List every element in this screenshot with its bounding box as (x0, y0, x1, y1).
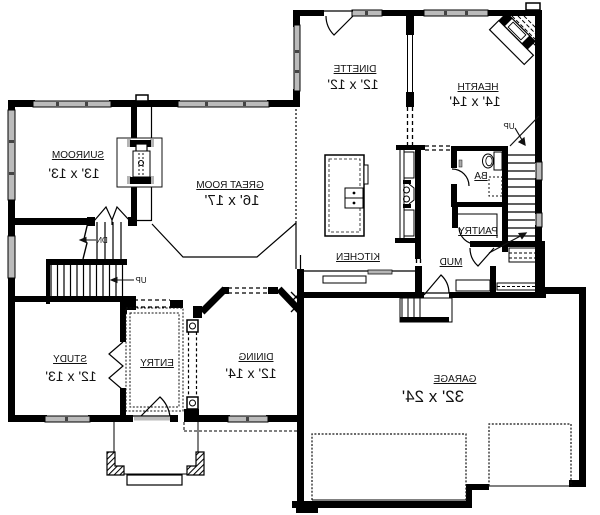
svg-text:BA: BA (474, 171, 488, 182)
svg-text:SUNROOM: SUNROOM (52, 150, 104, 161)
svg-text:12' x 12': 12' x 12' (327, 76, 378, 92)
svg-text:DN: DN (96, 236, 108, 245)
svg-text:STUDY: STUDY (53, 354, 87, 365)
svg-text:13' x 13': 13' x 13' (48, 165, 99, 181)
svg-text:GARAGE: GARAGE (433, 374, 476, 385)
svg-text:ENTRY: ENTRY (140, 358, 174, 369)
svg-text:DINING: DINING (238, 352, 273, 363)
svg-text:HEARTH: HEARTH (458, 82, 499, 93)
svg-text:12' x 13': 12' x 13' (45, 368, 96, 384)
svg-text:KITCHEN: KITCHEN (336, 252, 380, 263)
svg-text:PANTRY: PANTRY (458, 226, 498, 237)
svg-text:UP: UP (135, 276, 146, 285)
svg-text:UP: UP (503, 122, 514, 131)
svg-text:32' x 24': 32' x 24' (402, 387, 464, 406)
svg-text:DINETTE: DINETTE (333, 64, 376, 75)
svg-text:16' x 17': 16' x 17' (204, 192, 259, 209)
svg-text:MUD: MUD (440, 257, 463, 268)
svg-text:12' x 14': 12' x 14' (225, 365, 276, 381)
svg-text:14' x 14': 14' x 14' (449, 93, 500, 109)
svg-text:GREAT ROOM: GREAT ROOM (196, 180, 263, 191)
